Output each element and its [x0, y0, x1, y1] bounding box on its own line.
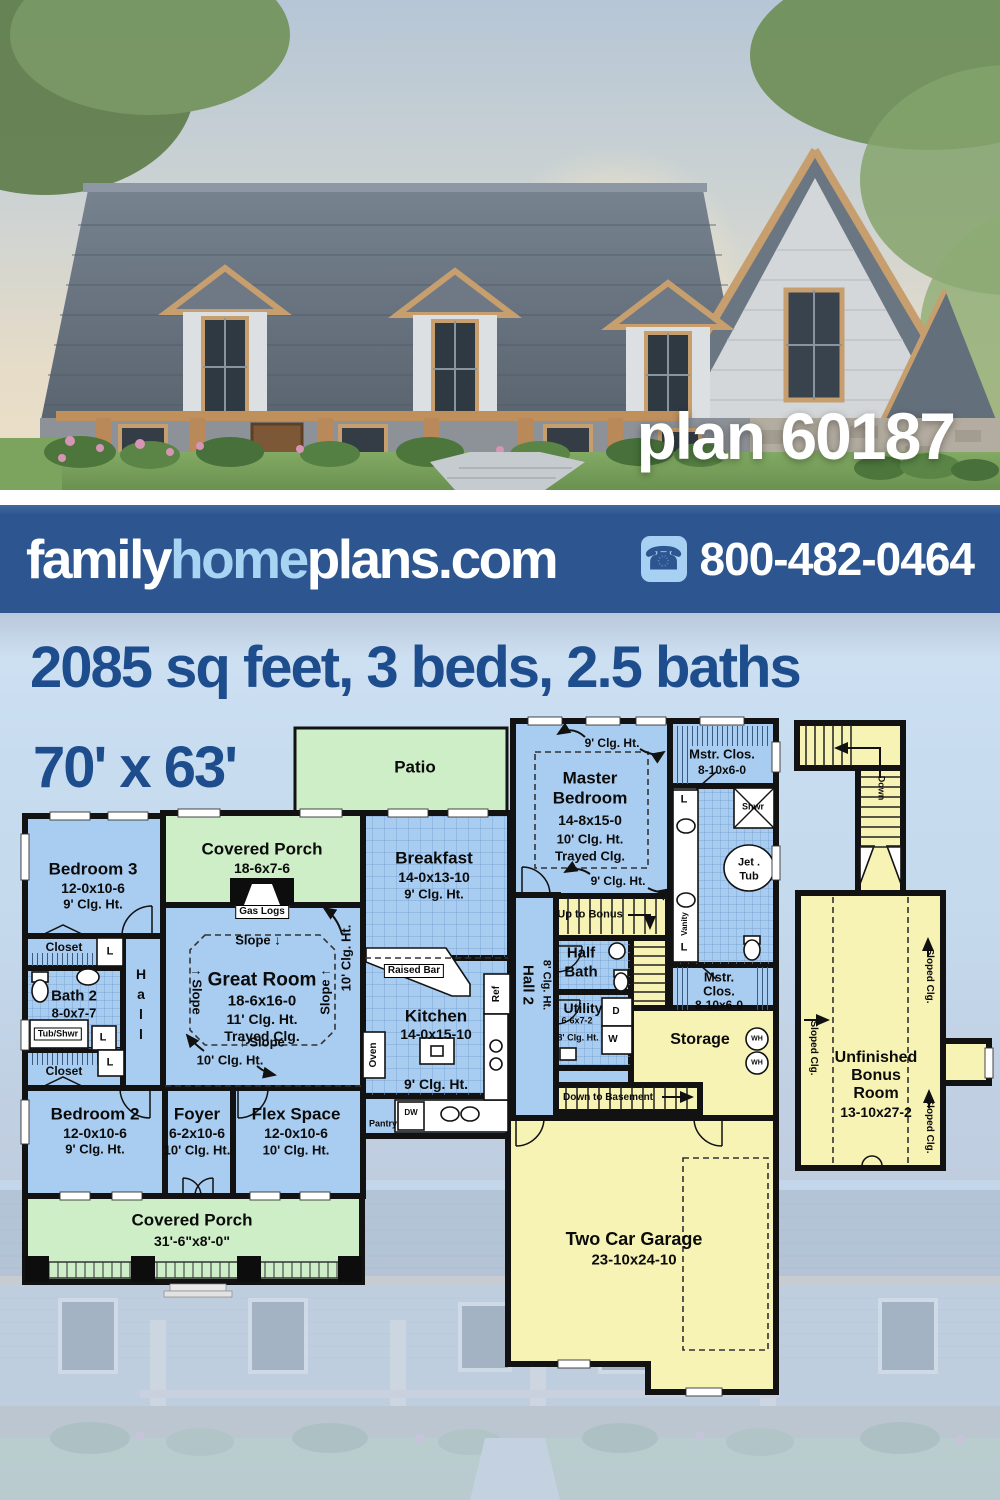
logo-plans: plans.com	[307, 528, 557, 590]
floorplan-illustration	[0, 690, 1000, 1450]
divider-strip	[0, 490, 1000, 505]
phone-number: 800-482-0464	[700, 532, 974, 586]
house-photo: plan 60187	[0, 0, 1000, 490]
phone-block: ☎ 800-482-0464	[641, 532, 974, 586]
plan-number-overlay: plan 60187	[636, 398, 954, 474]
promo-poster: plan 60187 familyhomeplans.com ☎ 800-482…	[0, 0, 1000, 1500]
headline-dimensions: 70' x 63'	[33, 734, 236, 801]
logo-home: home	[170, 528, 307, 590]
site-logo: familyhomeplans.com	[26, 527, 556, 591]
brand-banner: familyhomeplans.com ☎ 800-482-0464	[0, 505, 1000, 613]
phone-icon: ☎	[641, 536, 687, 582]
logo-family: family	[26, 528, 170, 590]
headline-specs: 2085 sq feet, 3 beds, 2.5 baths	[30, 634, 800, 701]
